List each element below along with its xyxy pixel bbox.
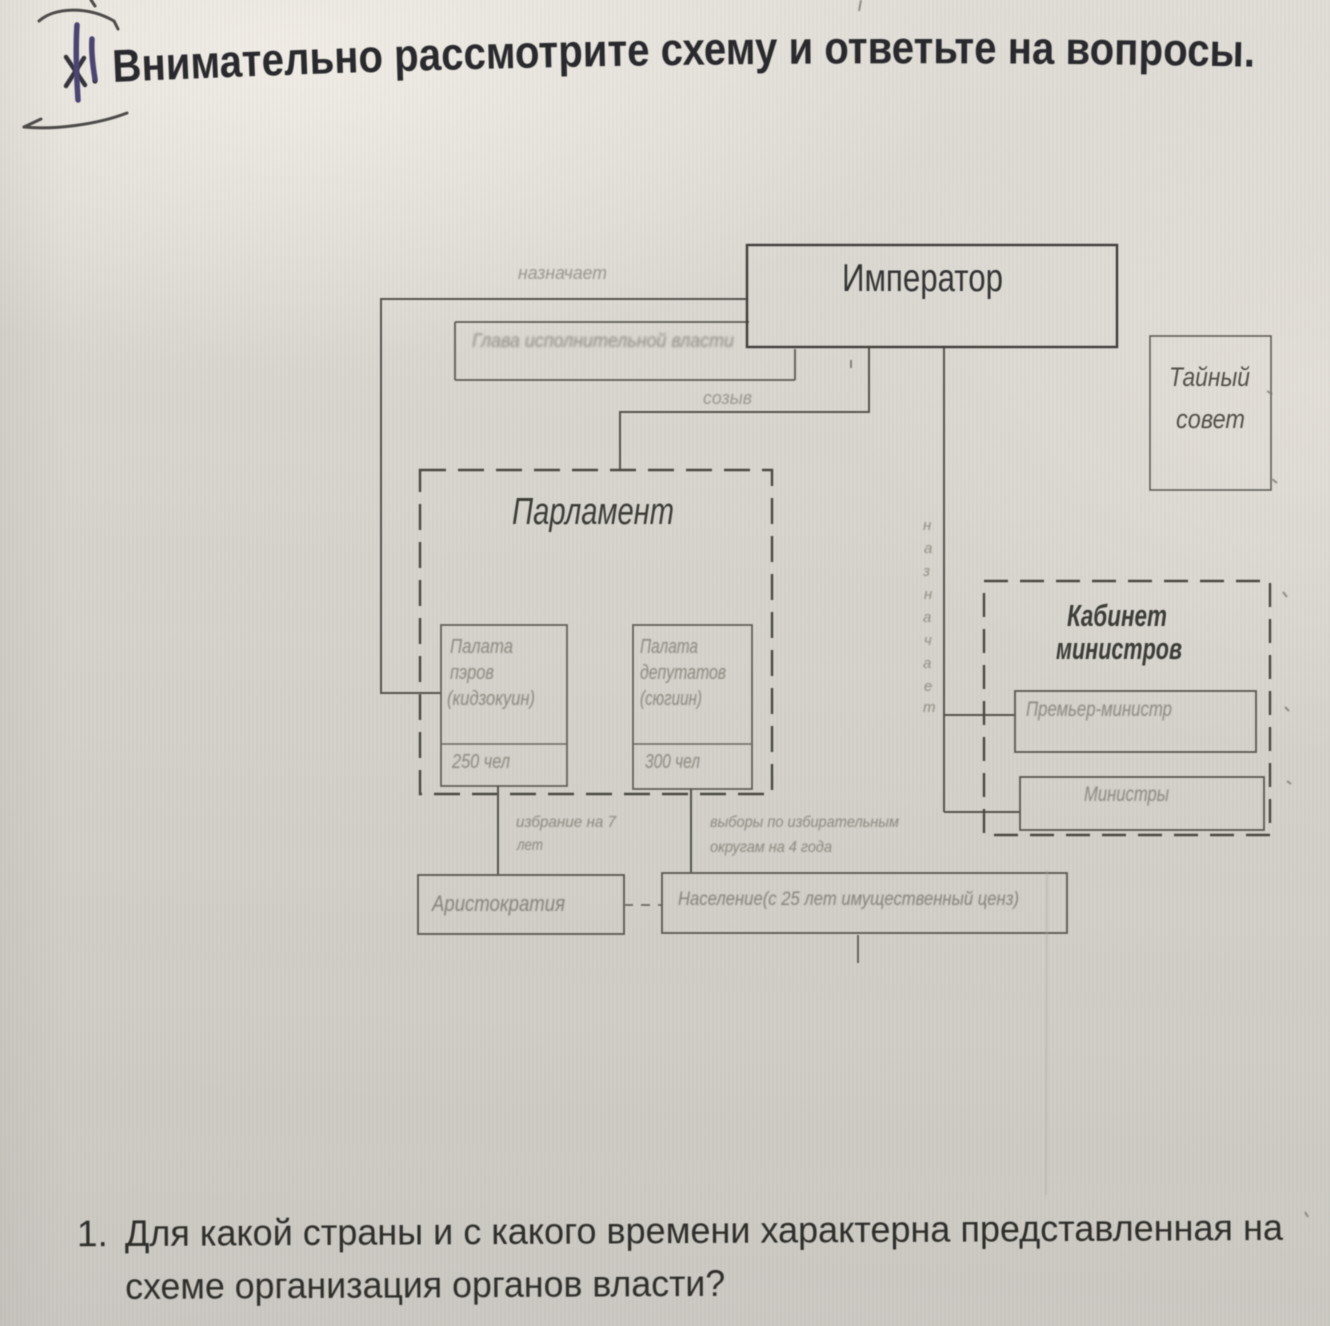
svg-text:выборы по избирательным: выборы по избирательным [710,814,899,831]
svg-text:Палата: Палата [640,636,698,658]
svg-text:300 чел: 300 чел [645,751,700,773]
svg-text:а: а [924,540,932,557]
svg-text:пэров: пэров [450,662,494,684]
svg-text:Премьер-министр: Премьер-министр [1026,698,1172,721]
svg-text:Для какой страны и с какого вр: Для какой страны и с какого времени хара… [125,1207,1284,1254]
svg-text:Император: Император [842,257,1003,300]
svg-text:избрание на 7: избрание на 7 [516,814,617,831]
svg-text:з: з [922,563,930,580]
svg-text:н: н [924,586,932,603]
svg-text:ч: ч [924,632,932,649]
svg-text:(кидзокуин): (кидзокуин) [447,688,535,710]
svg-text:лет: лет [516,837,543,854]
svg-text:Глава исполнительной власти: Глава исполнительной власти [472,331,734,352]
svg-text:1.: 1. [77,1213,108,1254]
svg-text:Население(с 25 лет имуществен: Население(с 25 лет имущественный ценз) [678,889,1019,910]
svg-text:250 чел: 250 чел [451,751,510,773]
svg-text:Министры: Министры [1084,783,1169,806]
svg-text:округам на 4 года: округам на 4 года [710,839,832,856]
svg-text:Парламент: Парламент [512,491,674,533]
svg-text:созыв: созыв [703,388,752,408]
svg-text:Палата: Палата [450,636,513,658]
svg-text:Тайный: Тайный [1169,362,1250,392]
svg-text:е: е [924,678,932,695]
svg-text:депутатов: депутатов [640,662,726,684]
svg-text:(сюгиин): (сюгиин) [640,688,702,710]
svg-text:а: а [923,655,931,672]
svg-text:н: н [923,517,931,534]
svg-text:а: а [923,609,931,626]
svg-text:Аристократия: Аристократия [430,891,565,916]
svg-text:схеме организация органов влас: схеме организация органов власти? [125,1263,725,1307]
svg-text:т: т [923,699,936,716]
svg-text:назначает: назначает [518,263,607,283]
svg-text:Кабинет: Кабинет [1067,598,1167,633]
svg-text:совет: совет [1176,404,1245,434]
svg-text:министров: министров [1056,631,1182,666]
